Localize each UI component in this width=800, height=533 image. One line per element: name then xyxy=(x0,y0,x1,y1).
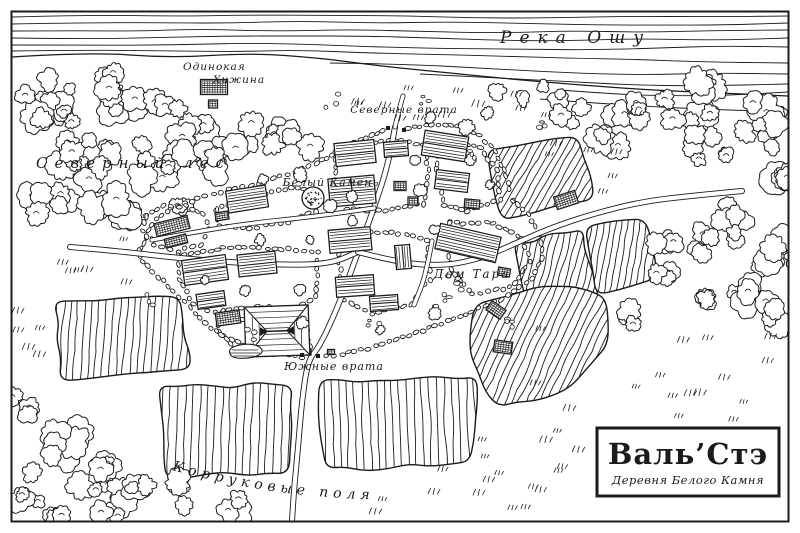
tree-cluster xyxy=(547,90,591,130)
north-forest-label: Северный лес xyxy=(36,154,231,172)
bush xyxy=(429,225,440,235)
tree-cluster xyxy=(646,230,684,256)
tar-house-label: Дом Тара xyxy=(433,267,511,281)
white-stone xyxy=(302,187,324,209)
house xyxy=(328,227,372,254)
tree-cluster xyxy=(216,490,252,524)
rocks xyxy=(432,292,452,308)
lonely-hut-label-line2: Хижина xyxy=(212,74,265,86)
pond xyxy=(230,344,263,358)
house xyxy=(237,251,277,277)
hut xyxy=(215,211,229,221)
tree-cluster xyxy=(695,288,717,310)
bush xyxy=(257,174,268,185)
gate-post xyxy=(386,126,390,130)
bush xyxy=(240,285,251,297)
gate-post xyxy=(402,128,406,132)
house xyxy=(196,291,226,310)
tree-cluster xyxy=(759,139,800,195)
map-page: Река Ошу Северный лес Одинокая Хижина Се… xyxy=(0,0,800,533)
tree-cluster xyxy=(734,91,788,144)
tree-cluster xyxy=(40,415,94,473)
hut xyxy=(394,182,406,191)
house xyxy=(370,295,399,312)
tree-cluster xyxy=(276,120,324,163)
house xyxy=(334,139,376,166)
tree-cluster xyxy=(14,67,80,134)
north-gate-label: Северные врата xyxy=(350,104,458,116)
gate-post xyxy=(316,354,320,358)
rocks xyxy=(324,92,341,109)
map-subtitle: Деревня Белого Камня xyxy=(611,473,764,487)
house xyxy=(335,275,374,298)
river-label: Река Ошу xyxy=(499,28,651,48)
bush xyxy=(375,325,385,335)
bush xyxy=(488,83,507,101)
bush xyxy=(294,284,306,296)
tree-cluster xyxy=(1,387,40,423)
south-gate-label: Южные врата xyxy=(283,360,384,373)
tree-cluster xyxy=(17,182,80,227)
bush xyxy=(306,235,314,244)
lonely-hut-label-line1: Одинокая xyxy=(183,61,246,73)
tree-cluster xyxy=(648,262,680,287)
hut xyxy=(408,197,418,205)
bush xyxy=(428,306,441,320)
house xyxy=(435,223,501,262)
hut xyxy=(464,199,480,209)
hut xyxy=(209,100,218,108)
hut xyxy=(328,350,335,355)
title-box: Валь’Стэ Деревня Белого Камня xyxy=(597,428,779,496)
house xyxy=(434,170,469,193)
gate-post xyxy=(300,353,304,357)
white-stone-label: Белый Камень xyxy=(281,176,379,189)
tree-cluster xyxy=(617,298,642,331)
hut xyxy=(493,340,512,354)
rocks xyxy=(366,319,382,327)
bush xyxy=(323,200,336,213)
bush xyxy=(480,106,493,120)
rocks xyxy=(537,121,548,130)
tree-cluster xyxy=(143,88,188,118)
tree-cluster xyxy=(751,223,800,277)
bush xyxy=(347,215,357,226)
bush xyxy=(410,155,421,165)
house xyxy=(384,141,409,158)
bush xyxy=(254,233,265,246)
map-title: Валь’Стэ xyxy=(608,437,768,471)
tree-cluster xyxy=(43,505,71,529)
map-content: Река Ошу Северный лес Одинокая Хижина Се… xyxy=(1,15,800,529)
village-map: Река Ошу Северный лес Одинокая Хижина Се… xyxy=(0,0,800,533)
tree-cluster xyxy=(94,63,148,127)
house xyxy=(394,244,411,269)
hut xyxy=(215,310,241,326)
